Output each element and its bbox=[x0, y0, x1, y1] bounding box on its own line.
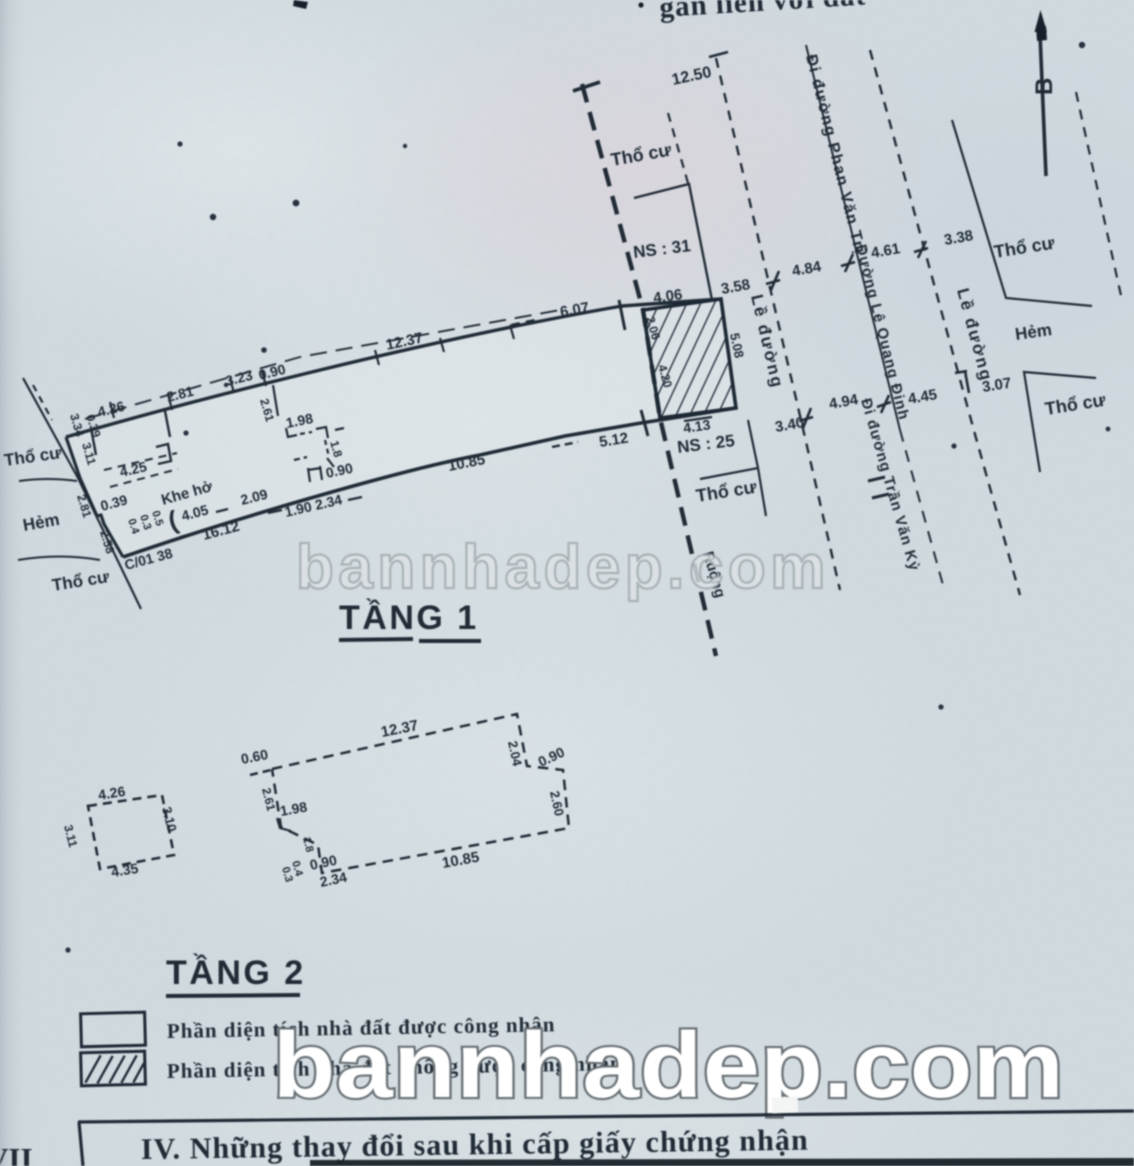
svg-text:Thổ cư: Thổ cư bbox=[694, 476, 758, 505]
svg-text:B: B bbox=[1031, 78, 1058, 95]
svg-text:3.58: 3.58 bbox=[720, 276, 752, 298]
svg-text:bannhadep.com: bannhadep.com bbox=[273, 1013, 1064, 1117]
svg-text:Thổ cư: Thổ cư bbox=[3, 443, 63, 470]
svg-text:4.26: 4.26 bbox=[96, 398, 127, 420]
svg-text:Đường Lê Quang Định: Đường Lê Quang Định bbox=[852, 243, 912, 422]
svg-text:4.13: 4.13 bbox=[682, 416, 711, 436]
svg-text:1.8: 1.8 bbox=[300, 836, 315, 854]
svg-text:Hẻm: Hẻm bbox=[21, 510, 61, 535]
svg-text:4.45: 4.45 bbox=[907, 386, 939, 408]
svg-text:Lề đường: Lề đường bbox=[953, 286, 996, 384]
svg-text:3.07: 3.07 bbox=[981, 375, 1013, 396]
svg-text:TẦNG 1: TẦNG 1 bbox=[339, 599, 479, 637]
svg-text:VII: VII bbox=[0, 1141, 33, 1166]
svg-text:12.50: 12.50 bbox=[670, 64, 713, 89]
svg-text:Lề đường: Lề đường bbox=[747, 293, 787, 391]
svg-text:4.35: 4.35 bbox=[110, 860, 140, 880]
svg-text:4.94: 4.94 bbox=[828, 391, 860, 413]
svg-text:Hẻm: Hẻm bbox=[1014, 320, 1053, 344]
svg-text:Thổ cư: Thổ cư bbox=[1043, 389, 1107, 418]
svg-text:Thổ cư: Thổ cư bbox=[609, 139, 674, 169]
svg-text:5.12: 5.12 bbox=[598, 430, 630, 451]
svg-text:10.85: 10.85 bbox=[441, 849, 481, 872]
svg-text:Thổ cư: Thổ cư bbox=[51, 567, 112, 595]
svg-text:NS : 31: NS : 31 bbox=[632, 236, 692, 262]
svg-text:TẦNG 2: TẦNG 2 bbox=[166, 954, 306, 992]
svg-text:bannhadep.com: bannhadep.com bbox=[296, 533, 830, 602]
svg-text:2.60: 2.60 bbox=[547, 790, 567, 818]
svg-text:4.61: 4.61 bbox=[870, 240, 902, 262]
svg-text:Đi đường Phan Văn Trị: Đi đường Phan Văn Trị bbox=[802, 53, 868, 257]
svg-text:gắn liền với đất: gắn liền với đất bbox=[658, 0, 866, 24]
svg-text:1.98: 1.98 bbox=[279, 798, 309, 819]
svg-text:3.38: 3.38 bbox=[943, 227, 975, 249]
svg-text:3.11: 3.11 bbox=[61, 823, 80, 849]
svg-text:3.10: 3.10 bbox=[159, 805, 180, 833]
svg-text:3.23: 3.23 bbox=[224, 367, 255, 389]
svg-text:Thổ cư: Thổ cư bbox=[992, 232, 1056, 261]
svg-text:Đi đường Trần Văn Kỷ: Đi đường Trần Văn Kỷ bbox=[857, 396, 923, 573]
svg-text:4.84: 4.84 bbox=[791, 258, 823, 280]
svg-text:0.60: 0.60 bbox=[240, 746, 270, 767]
svg-text:0.90: 0.90 bbox=[536, 744, 568, 770]
svg-text:3.40: 3.40 bbox=[774, 414, 806, 436]
